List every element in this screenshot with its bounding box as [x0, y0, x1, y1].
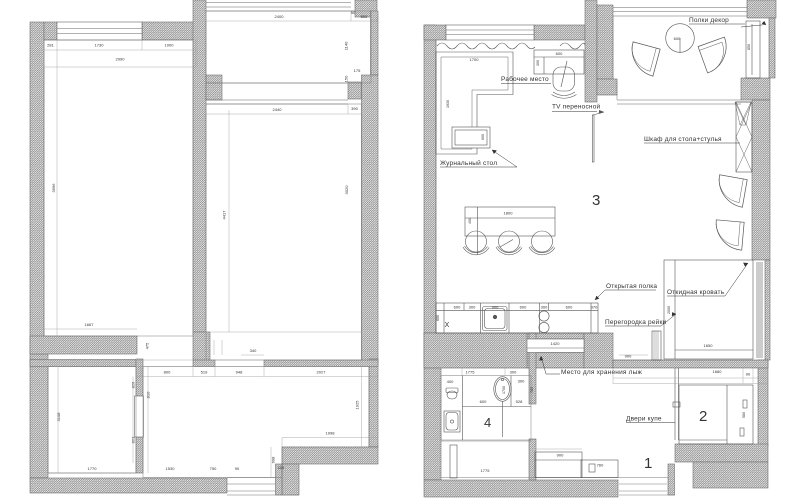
svg-text:600: 600	[481, 134, 485, 140]
svg-text:600: 600	[361, 14, 368, 19]
svg-text:785: 785	[530, 387, 534, 393]
svg-text:Рабочее место: Рабочее место	[501, 75, 549, 83]
svg-text:850: 850	[747, 44, 751, 50]
svg-text:2400: 2400	[275, 14, 285, 19]
svg-text:300: 300	[510, 370, 517, 375]
svg-text:X: X	[445, 322, 450, 329]
svg-text:1530: 1530	[166, 466, 176, 471]
svg-text:600: 600	[566, 305, 573, 310]
svg-text:1: 1	[644, 455, 652, 472]
svg-text:2: 2	[699, 408, 707, 425]
svg-text:750: 750	[210, 466, 217, 471]
svg-text:1925: 1925	[355, 400, 360, 410]
svg-text:528: 528	[516, 399, 523, 404]
svg-text:300: 300	[518, 379, 525, 384]
svg-text:50: 50	[351, 10, 356, 15]
svg-text:175: 175	[354, 68, 361, 73]
svg-text:600: 600	[520, 305, 527, 310]
svg-text:1650: 1650	[704, 343, 714, 348]
svg-text:400: 400	[447, 379, 454, 384]
svg-text:900: 900	[492, 305, 499, 310]
svg-text:600: 600	[454, 305, 461, 310]
svg-text:2990: 2990	[116, 57, 126, 62]
svg-text:1680: 1680	[713, 369, 723, 374]
svg-text:150: 150	[344, 75, 349, 82]
svg-text:Откидная кровать: Откидная кровать	[667, 289, 725, 296]
svg-text:1000: 1000	[165, 43, 175, 48]
svg-text:600: 600	[480, 399, 487, 404]
svg-text:1700: 1700	[470, 57, 480, 62]
svg-text:1998: 1998	[326, 431, 336, 436]
svg-text:300: 300	[536, 60, 540, 66]
svg-text:300: 300	[469, 305, 476, 310]
svg-text:600: 600	[556, 51, 563, 56]
svg-text:Место для хранения лыж: Место для хранения лыж	[561, 369, 642, 376]
svg-text:600: 600	[436, 315, 440, 321]
svg-text:90: 90	[235, 466, 240, 471]
svg-text:2000: 2000	[667, 306, 671, 314]
svg-text:390: 390	[351, 106, 358, 111]
svg-text:Шкаф для стола+стулья: Шкаф для стола+стулья	[644, 136, 722, 143]
svg-text:900: 900	[625, 354, 632, 359]
svg-text:1775: 1775	[481, 468, 491, 473]
svg-text:370: 370	[591, 305, 598, 310]
svg-text:3: 3	[592, 192, 600, 209]
svg-text:Перегородка рейки: Перегородка рейки	[605, 318, 667, 326]
svg-text:1667: 1667	[85, 322, 95, 327]
svg-text:800: 800	[164, 370, 171, 375]
svg-text:3108: 3108	[56, 412, 61, 422]
svg-text:1140: 1140	[344, 41, 349, 50]
svg-text:4: 4	[484, 415, 491, 430]
svg-text:Журнальный стол: Журнальный стол	[440, 159, 497, 167]
svg-text:1775: 1775	[466, 370, 476, 375]
svg-text:760: 760	[597, 463, 604, 468]
svg-text:340: 340	[250, 348, 257, 353]
svg-text:948: 948	[236, 370, 243, 375]
svg-text:826: 826	[131, 381, 136, 388]
svg-text:1770: 1770	[88, 466, 98, 471]
svg-text:600: 600	[674, 36, 681, 41]
svg-text:TV переносной: TV переносной	[552, 103, 601, 111]
svg-text:1800: 1800	[504, 211, 514, 216]
svg-text:475: 475	[145, 342, 150, 349]
svg-text:3020: 3020	[344, 185, 349, 195]
svg-text:281: 281	[47, 43, 54, 48]
svg-text:580: 580	[742, 412, 746, 418]
svg-text:1420: 1420	[551, 341, 561, 346]
svg-text:Двери купе: Двери купе	[626, 416, 662, 423]
svg-text:90: 90	[746, 372, 751, 377]
svg-text:823: 823	[131, 436, 136, 443]
svg-text:300: 300	[541, 305, 548, 310]
svg-text:110: 110	[278, 465, 285, 470]
svg-text:2027: 2027	[317, 370, 327, 375]
svg-text:1730: 1730	[95, 43, 105, 48]
svg-text:1930: 1930	[446, 100, 450, 108]
svg-text:810: 810	[146, 391, 151, 398]
svg-text:Открытая полка: Открытая полка	[606, 283, 657, 290]
svg-text:900: 900	[557, 453, 564, 458]
svg-text:4417: 4417	[222, 210, 227, 220]
svg-text:2440: 2440	[273, 107, 283, 112]
svg-text:698: 698	[271, 456, 276, 463]
svg-text:519: 519	[201, 370, 208, 375]
svg-text:3996: 3996	[51, 183, 56, 193]
svg-text:Полки декор: Полки декор	[689, 17, 729, 24]
svg-text:400: 400	[468, 218, 472, 224]
svg-text:1700: 1700	[502, 386, 506, 394]
